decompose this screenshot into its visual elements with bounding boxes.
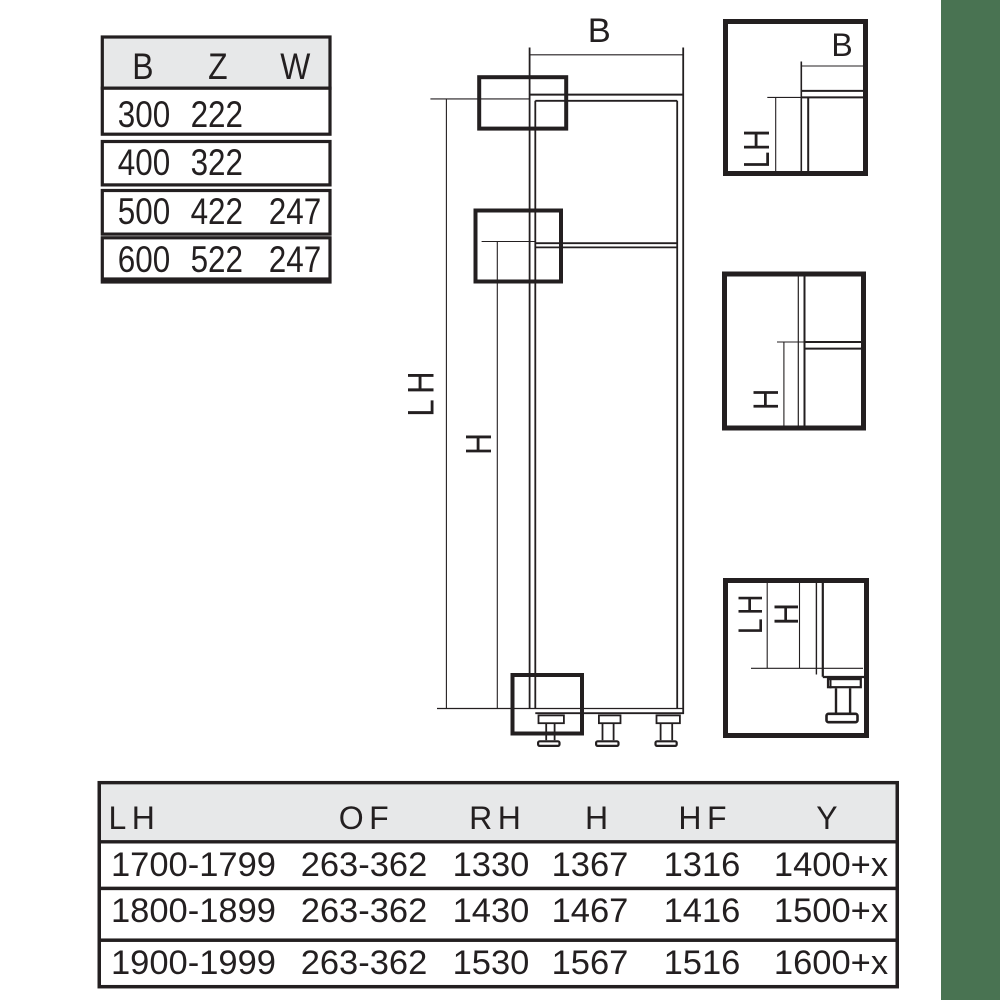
svg-text:263-362: 263-362 xyxy=(301,846,428,884)
svg-text:322: 322 xyxy=(191,143,243,184)
svg-text:1400+x: 1400+x xyxy=(774,846,888,884)
svg-text:H: H xyxy=(731,594,769,615)
svg-text:1567: 1567 xyxy=(552,944,629,982)
svg-text:522: 522 xyxy=(191,240,243,281)
svg-text:1700-1799: 1700-1799 xyxy=(111,846,276,884)
svg-text:Z: Z xyxy=(208,45,227,87)
svg-text:H: H xyxy=(401,371,442,393)
svg-text:1467: 1467 xyxy=(552,892,629,930)
svg-text:W: W xyxy=(280,45,310,87)
svg-text:H: H xyxy=(738,129,778,151)
svg-text:263-362: 263-362 xyxy=(301,944,428,982)
svg-text:247: 247 xyxy=(269,240,321,281)
svg-text:RH: RH xyxy=(469,800,526,836)
svg-text:L: L xyxy=(401,399,442,416)
svg-text:1516: 1516 xyxy=(664,944,741,982)
svg-text:1530: 1530 xyxy=(453,944,530,982)
svg-text:263-362: 263-362 xyxy=(301,892,428,930)
svg-text:1900-1999: 1900-1999 xyxy=(111,944,276,982)
svg-text:1330: 1330 xyxy=(453,846,530,884)
svg-text:222: 222 xyxy=(191,95,243,136)
svg-text:1367: 1367 xyxy=(552,846,629,884)
svg-text:HF: HF xyxy=(678,800,732,836)
svg-text:L: L xyxy=(738,152,778,169)
svg-text:422: 422 xyxy=(191,192,243,233)
svg-text:B: B xyxy=(132,45,153,87)
svg-text:500: 500 xyxy=(118,192,170,233)
svg-text:247: 247 xyxy=(269,192,321,233)
svg-text:1600+x: 1600+x xyxy=(774,944,888,982)
svg-text:600: 600 xyxy=(118,240,170,281)
svg-text:400: 400 xyxy=(118,143,170,184)
svg-text:OF: OF xyxy=(339,800,394,836)
svg-text:H: H xyxy=(747,389,786,410)
svg-text:1430: 1430 xyxy=(453,892,530,930)
svg-text:1800-1899: 1800-1899 xyxy=(111,892,276,930)
svg-text:300: 300 xyxy=(118,95,170,136)
svg-text:Y: Y xyxy=(816,800,843,836)
svg-text:L: L xyxy=(731,618,769,634)
svg-text:LH: LH xyxy=(109,800,161,836)
svg-text:H: H xyxy=(585,800,614,836)
svg-text:B: B xyxy=(588,12,611,50)
svg-text:1316: 1316 xyxy=(664,846,741,884)
svg-text:1500+x: 1500+x xyxy=(774,892,888,930)
svg-text:H: H xyxy=(460,433,500,455)
svg-text:B: B xyxy=(831,27,852,63)
svg-text:H: H xyxy=(767,603,805,625)
svg-text:1416: 1416 xyxy=(664,892,741,930)
